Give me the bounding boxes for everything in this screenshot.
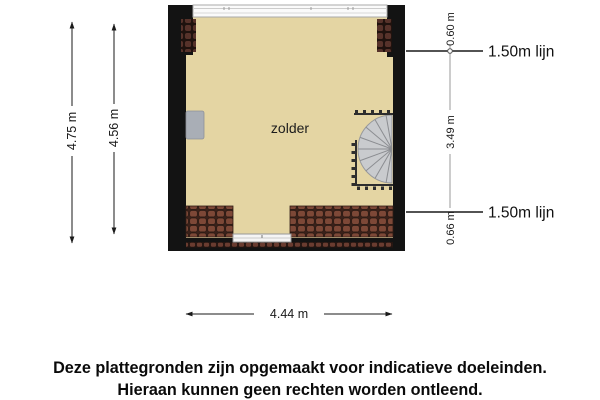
roof-tiles-bottom-right <box>290 206 393 237</box>
roof-tiles-bottom-left <box>186 206 233 237</box>
footer-line-2: Hieraan kunnen geen rechten worden ontle… <box>117 381 482 399</box>
footer-disclaimer: Deze plattegronden zijn opgemaakt voor i… <box>53 359 547 399</box>
marker-circle-icon <box>448 49 453 54</box>
roof-tiles-top-left <box>181 19 196 52</box>
room-label: zolder <box>271 120 309 136</box>
floorplan-svg: zolder 4.75 m 4.56 m 0.60 m 3.49 m 0.66 … <box>0 0 600 400</box>
roof-tiles-bottom-strip <box>186 242 393 248</box>
floorplan-page: zolder 4.75 m 4.56 m 0.60 m 3.49 m 0.66 … <box>0 0 600 400</box>
footer-line-1: Deze plattegronden zijn opgemaakt voor i… <box>53 359 547 377</box>
dim-left-inner-label: 4.56 m <box>107 109 121 147</box>
height-marker-top-label: 1.50m lijn <box>488 44 554 61</box>
roof-tiles-top-right <box>377 19 392 52</box>
dim-right-top-label: 0.60 m <box>445 12 457 46</box>
arrow-down-icon <box>70 237 75 244</box>
top-window-band <box>193 5 387 17</box>
arrow-up-icon <box>70 22 75 29</box>
arrow-down-icon <box>112 228 117 235</box>
roof-window <box>233 234 291 242</box>
arrow-up-icon <box>112 24 117 31</box>
arrow-right-icon <box>386 312 393 317</box>
dim-bottom-label: 4.44 m <box>270 307 308 321</box>
dim-right-middle-label: 3.49 m <box>445 115 457 149</box>
dim-right-bottom-label: 0.66 m <box>445 211 457 245</box>
height-marker-bottom-label: 1.50m lijn <box>488 205 554 222</box>
arrow-left-icon <box>186 312 193 317</box>
dim-left-outer-label: 4.75 m <box>65 112 79 150</box>
floor-plan: zolder <box>168 5 405 251</box>
chimney <box>186 111 204 139</box>
